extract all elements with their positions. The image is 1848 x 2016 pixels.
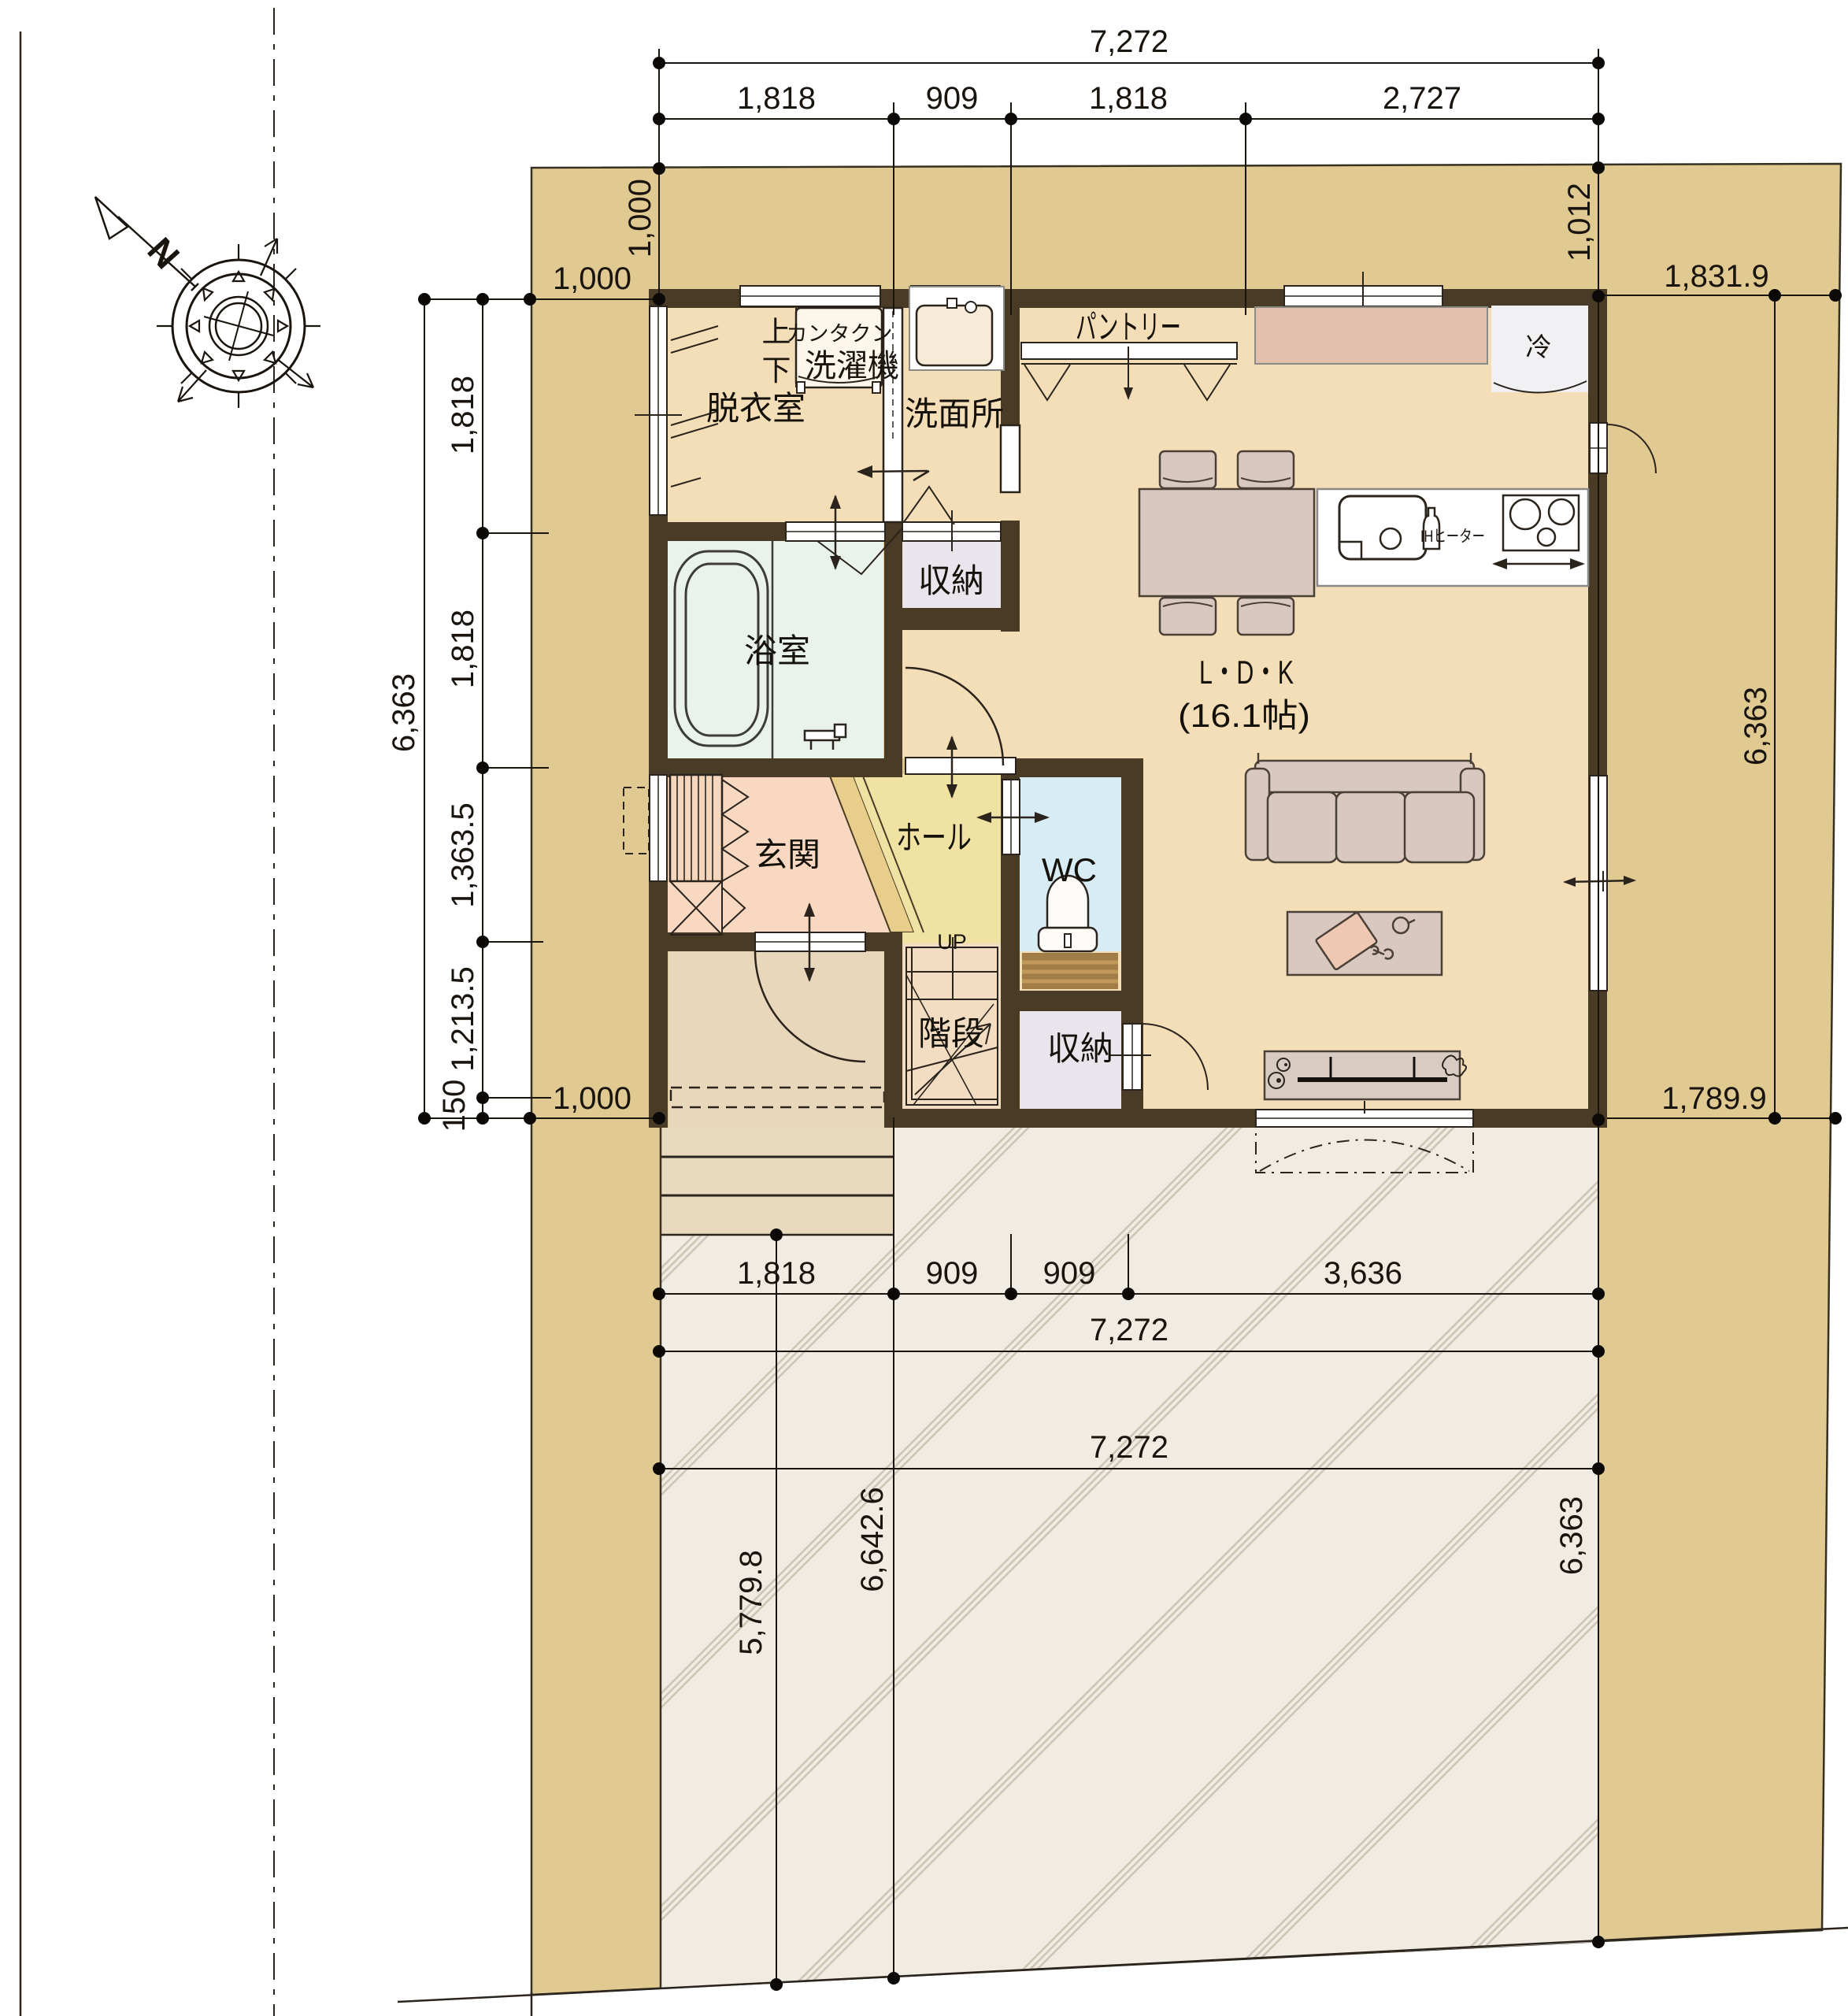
svg-text:1,789.9: 1,789.9 bbox=[1661, 1081, 1766, 1116]
svg-text:1,000: 1,000 bbox=[553, 1081, 631, 1116]
svg-text:6,363: 6,363 bbox=[1739, 687, 1773, 765]
svg-text:上: 上 bbox=[762, 316, 791, 348]
svg-text:1,818: 1,818 bbox=[737, 81, 816, 116]
svg-text:冷: 冷 bbox=[1526, 332, 1552, 361]
svg-text:1,831.9: 1,831.9 bbox=[1664, 259, 1768, 294]
svg-text:1,213.5: 1,213.5 bbox=[446, 966, 480, 1071]
svg-text:L・D・K: L・D・K bbox=[1199, 654, 1294, 691]
svg-text:(16.1帖): (16.1帖) bbox=[1178, 697, 1310, 734]
svg-text:階段: 階段 bbox=[918, 1015, 984, 1052]
svg-text:1,000: 1,000 bbox=[623, 179, 657, 258]
svg-text:6,642.6: 6,642.6 bbox=[855, 1487, 890, 1592]
svg-text:6,363: 6,363 bbox=[387, 673, 421, 752]
svg-text:7,272: 7,272 bbox=[1090, 24, 1168, 59]
svg-text:N: N bbox=[139, 230, 187, 276]
svg-text:下: 下 bbox=[762, 354, 791, 387]
svg-text:1,818: 1,818 bbox=[737, 1256, 816, 1291]
svg-text:IHヒーター: IHヒーター bbox=[1420, 528, 1485, 546]
svg-text:洗面所: 洗面所 bbox=[905, 395, 1004, 432]
svg-text:909: 909 bbox=[926, 1256, 979, 1291]
svg-text:WC: WC bbox=[1042, 851, 1097, 888]
svg-text:ホール: ホール bbox=[896, 819, 972, 856]
svg-text:1,363.5: 1,363.5 bbox=[446, 802, 480, 907]
svg-text:6,363: 6,363 bbox=[1554, 1496, 1589, 1575]
svg-text:5,779.8: 5,779.8 bbox=[734, 1550, 768, 1655]
svg-text:玄関: 玄関 bbox=[754, 836, 820, 873]
svg-text:909: 909 bbox=[1043, 1256, 1096, 1291]
svg-text:1,818: 1,818 bbox=[446, 376, 480, 454]
svg-text:収納: 収納 bbox=[918, 562, 984, 599]
svg-text:収納: 収納 bbox=[1047, 1030, 1113, 1067]
svg-text:1,818: 1,818 bbox=[446, 610, 480, 688]
svg-text:1,000: 1,000 bbox=[553, 261, 631, 296]
svg-text:150: 150 bbox=[437, 1080, 472, 1132]
svg-text:909: 909 bbox=[926, 81, 979, 116]
svg-text:浴室: 浴室 bbox=[744, 632, 810, 669]
svg-text:パントリー: パントリー bbox=[1076, 309, 1181, 346]
svg-text:UP: UP bbox=[937, 930, 967, 954]
svg-text:洗濯機: 洗濯機 bbox=[805, 349, 899, 384]
svg-text:1,818: 1,818 bbox=[1089, 81, 1168, 116]
svg-text:脱衣室: 脱衣室 bbox=[706, 390, 805, 427]
svg-text:カンタクン: カンタクン bbox=[787, 322, 893, 346]
svg-text:3,636: 3,636 bbox=[1324, 1256, 1402, 1291]
svg-text:7,272: 7,272 bbox=[1090, 1313, 1168, 1347]
svg-text:2,727: 2,727 bbox=[1383, 81, 1461, 116]
svg-text:1,012: 1,012 bbox=[1562, 183, 1597, 261]
svg-text:7,272: 7,272 bbox=[1090, 1430, 1168, 1465]
